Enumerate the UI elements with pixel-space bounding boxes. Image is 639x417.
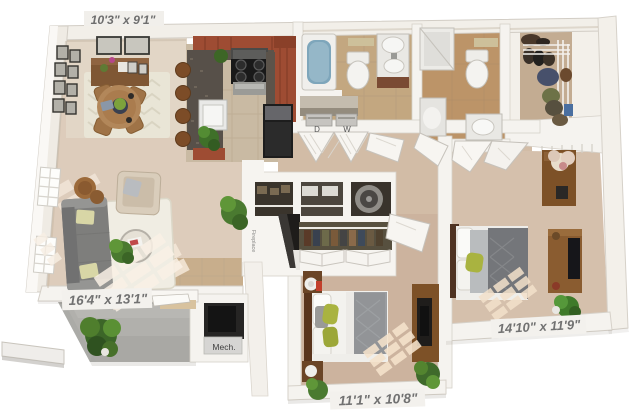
svg-text:10'3" x 9'1": 10'3" x 9'1" [91, 13, 156, 27]
svg-text:D: D [314, 125, 320, 134]
svg-text:16'4" x 13'1": 16'4" x 13'1" [68, 291, 148, 308]
svg-text:Fireplace: Fireplace [250, 230, 256, 253]
svg-text:W: W [343, 125, 351, 134]
svg-text:Mech.: Mech. [212, 342, 235, 352]
svg-text:11'1" x 10'8": 11'1" x 10'8" [338, 391, 418, 409]
